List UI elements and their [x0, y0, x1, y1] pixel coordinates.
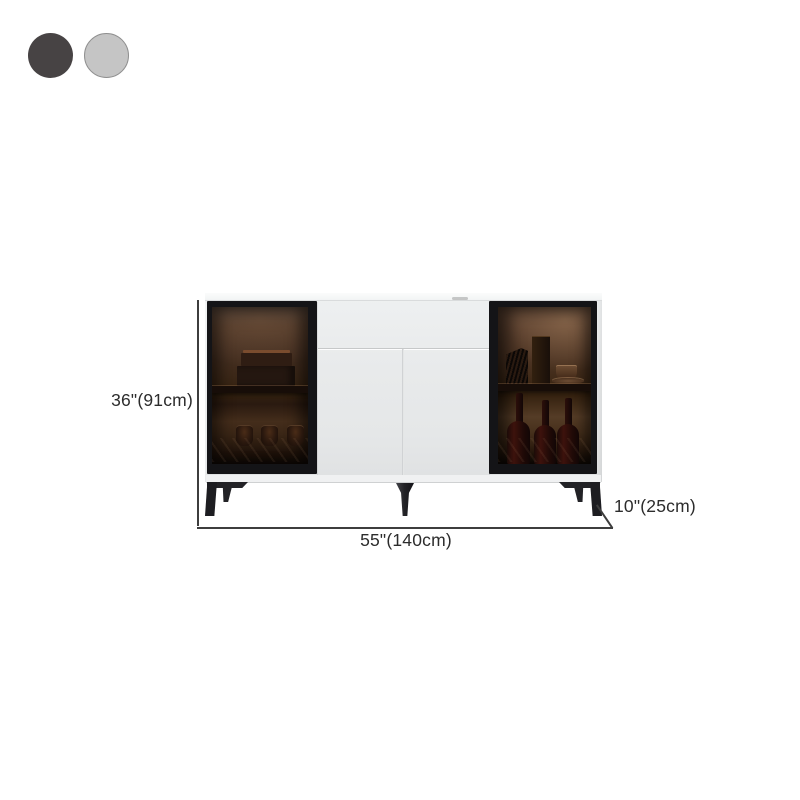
right-leg-brace — [572, 487, 586, 502]
width-dimension-line — [197, 527, 613, 529]
right-shelf — [498, 384, 591, 391]
height-dimension-line — [197, 300, 199, 526]
glass-reflection — [498, 438, 591, 462]
color-swatch-light-gray[interactable] — [84, 33, 129, 78]
left-leg-post — [205, 482, 218, 516]
glass-reflection — [212, 438, 308, 462]
left-glass-door — [207, 301, 317, 474]
panel-joint-left — [317, 302, 318, 479]
left-shelf — [212, 386, 308, 393]
product-dimension-image: 36"(91cm) 55"(140cm) 10"(25cm) — [0, 0, 800, 800]
sideboard — [205, 293, 602, 525]
depth-dimension-label: 10"(25cm) — [614, 496, 696, 517]
left-glass-panel — [212, 307, 308, 464]
book-stack-box — [237, 366, 295, 386]
right-glass-panel — [498, 307, 591, 464]
book-stack-middle — [241, 353, 292, 366]
right-glass-door — [489, 301, 597, 474]
top-reflection — [452, 297, 468, 300]
cabinet-top-surface — [205, 293, 602, 301]
color-swatch-dark-gray[interactable] — [28, 33, 73, 78]
center-leg — [396, 483, 414, 516]
width-dimension-label: 55"(140cm) — [299, 530, 513, 551]
tall-vase — [532, 336, 550, 385]
left-leg-brace — [220, 487, 234, 502]
record-stand — [506, 348, 528, 384]
cabinet-bottom-edge — [206, 475, 601, 483]
height-dimension-label: 36"(91cm) — [40, 390, 193, 411]
center-door-seam — [402, 349, 404, 479]
